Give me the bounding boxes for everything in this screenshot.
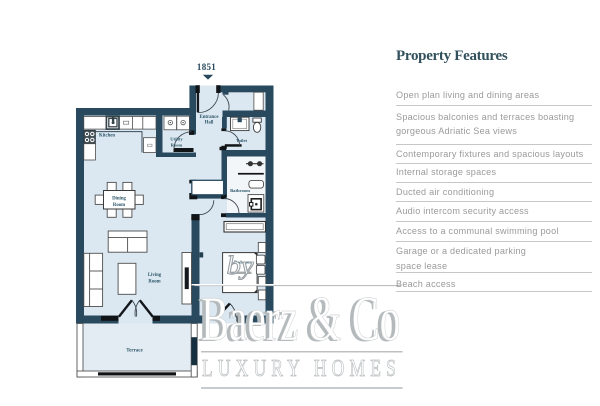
svg-text:Room: Room bbox=[171, 142, 183, 147]
svg-text:Entrance: Entrance bbox=[200, 115, 219, 120]
svg-text:Hall: Hall bbox=[205, 121, 214, 126]
svg-text:1851: 1851 bbox=[197, 62, 216, 72]
svg-text:Room: Room bbox=[148, 279, 160, 284]
svg-text:Dining: Dining bbox=[112, 196, 126, 201]
svg-text:Terrace: Terrace bbox=[126, 348, 143, 353]
svg-text:Utility: Utility bbox=[170, 137, 183, 142]
svg-text:Kitchen: Kitchen bbox=[99, 134, 115, 139]
svg-text:Living: Living bbox=[148, 273, 162, 278]
svg-text:LUXURY HOMES: LUXURY HOMES bbox=[202, 356, 401, 382]
svg-text:Toilet: Toilet bbox=[236, 138, 248, 143]
svg-text:Baerz & Co: Baerz & Co bbox=[201, 283, 401, 354]
svg-text:Bathroom: Bathroom bbox=[230, 188, 250, 193]
svg-text:by: by bbox=[227, 251, 254, 280]
svg-text:Room: Room bbox=[113, 203, 125, 208]
